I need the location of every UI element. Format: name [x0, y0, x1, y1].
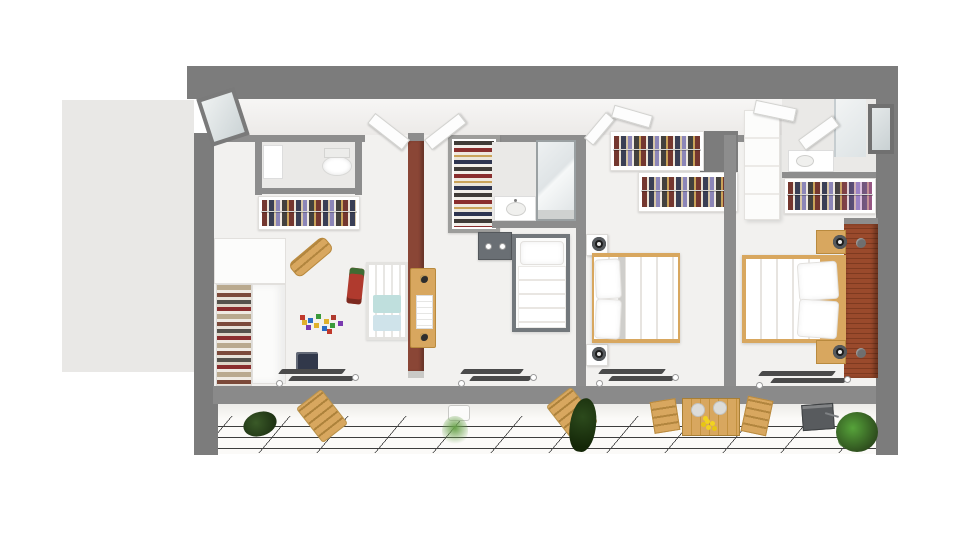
wc-wall-bottom: [255, 188, 362, 194]
nursery-wardrobe-top: [214, 238, 286, 284]
wall-lamp-top: [592, 237, 606, 251]
toilet-tank: [324, 148, 350, 158]
double-room-rack1: [610, 131, 704, 171]
single-bed: [512, 234, 570, 332]
toilet: [322, 156, 352, 176]
accent-wall-cap-bottom: [408, 371, 424, 378]
roof-area: [62, 100, 194, 372]
floorplan-canvas: [0, 0, 960, 540]
wall-lamp-bottom: [592, 347, 606, 361]
master-lamp-top: [833, 235, 847, 249]
window-double-room: [600, 368, 690, 388]
exterior-wall-top: [187, 66, 898, 99]
accent-wall-cap-top: [408, 133, 424, 141]
wall-room3-room4: [724, 135, 736, 386]
dining-bench-left: [650, 398, 681, 434]
storage-box: [801, 403, 835, 431]
green-shrub: [836, 412, 878, 452]
master-clothes-rack: [784, 178, 876, 214]
window-single-room: [462, 368, 552, 388]
wardrobe-folded-clothes: [216, 284, 252, 386]
master-bath-shower: [834, 99, 866, 157]
planter-grass: [442, 416, 468, 446]
double-room-rack2: [638, 172, 738, 212]
master-bed: [742, 255, 846, 343]
master-bath-sink: [788, 150, 834, 172]
wc-wall-left: [255, 135, 262, 195]
washbasin: [494, 196, 536, 221]
wc-wall-right: [355, 135, 362, 195]
master-lamp-bottom: [833, 345, 847, 359]
building-blocks: [300, 315, 305, 320]
double-bed: [592, 253, 680, 343]
shower: [536, 140, 576, 221]
crib: [366, 262, 408, 340]
wall-room2-room3: [576, 135, 586, 386]
wc-sink: [263, 145, 283, 179]
master-wardrobe: [744, 110, 780, 220]
changing-dresser: [410, 268, 436, 348]
wall-cabinet-dark: [478, 232, 512, 260]
window-master: [760, 370, 870, 390]
dining-table: [682, 398, 740, 436]
wall-dot-top: [856, 238, 866, 248]
bathroom-wall-bottom: [492, 221, 576, 228]
nursery-closet: [258, 196, 360, 230]
window-nursery: [280, 368, 370, 388]
wall-dot-bottom: [856, 348, 866, 358]
brick-wall-cap: [844, 218, 878, 224]
side-window: [868, 104, 894, 154]
